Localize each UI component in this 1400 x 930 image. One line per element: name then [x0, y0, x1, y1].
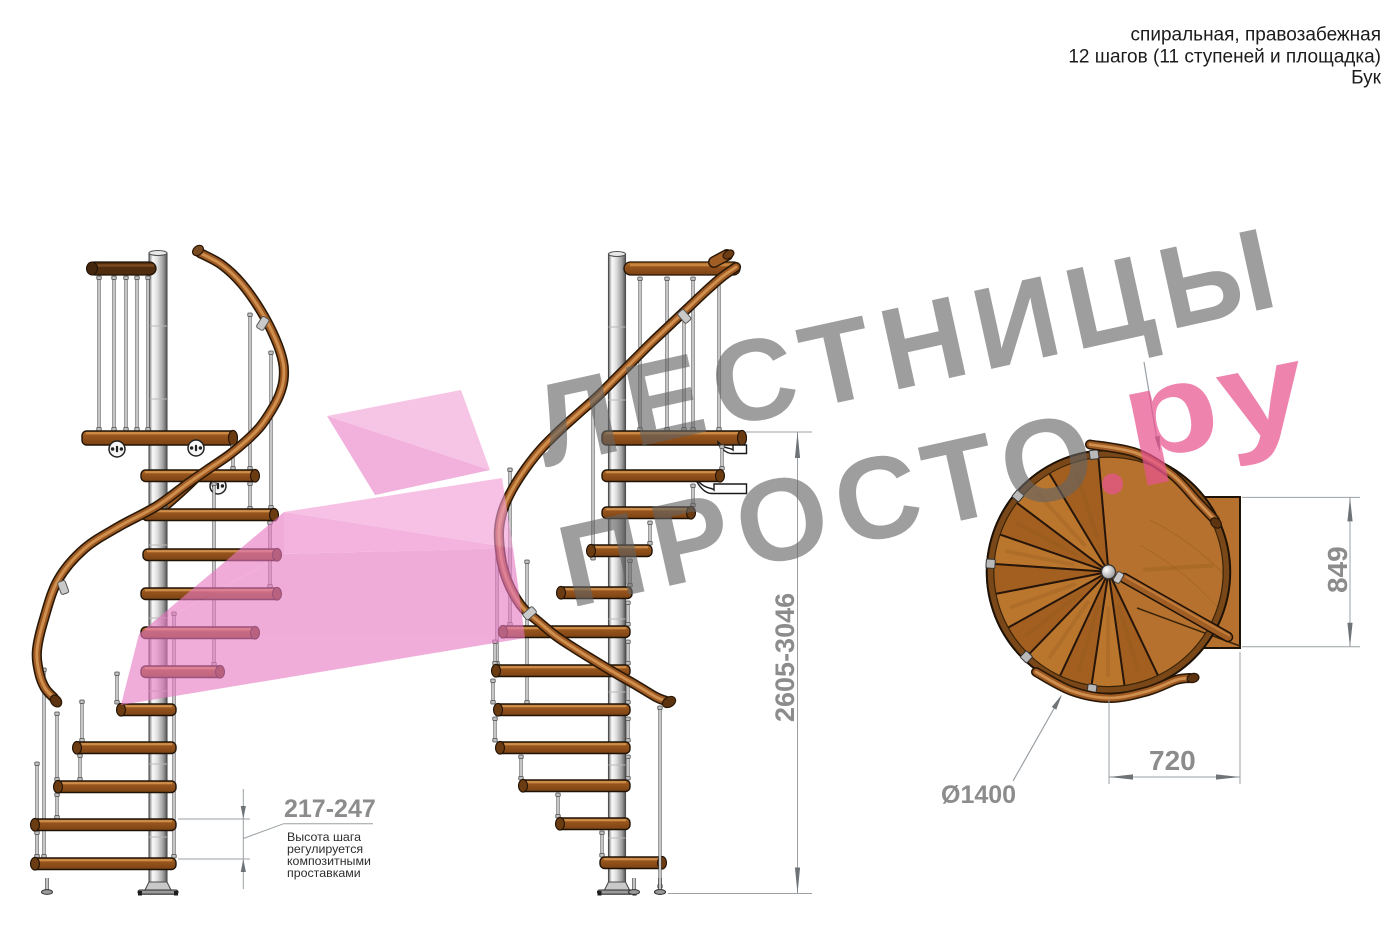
svg-text:Бук: Бук — [1351, 68, 1382, 89]
svg-text:12 шагов (11 ступеней и площад: 12 шагов (11 ступеней и площадка) — [1068, 47, 1381, 68]
svg-text:720: 720 — [1149, 745, 1196, 776]
svg-text:2605-3046: 2605-3046 — [770, 593, 800, 722]
svg-text:Ø1400: Ø1400 — [941, 781, 1016, 809]
svg-text:849: 849 — [1322, 546, 1353, 593]
svg-text:спиральная, правозабежная: спиральная, правозабежная — [1131, 25, 1381, 46]
svg-text:217-247: 217-247 — [284, 795, 376, 823]
svg-text:проставками: проставками — [287, 866, 361, 880]
